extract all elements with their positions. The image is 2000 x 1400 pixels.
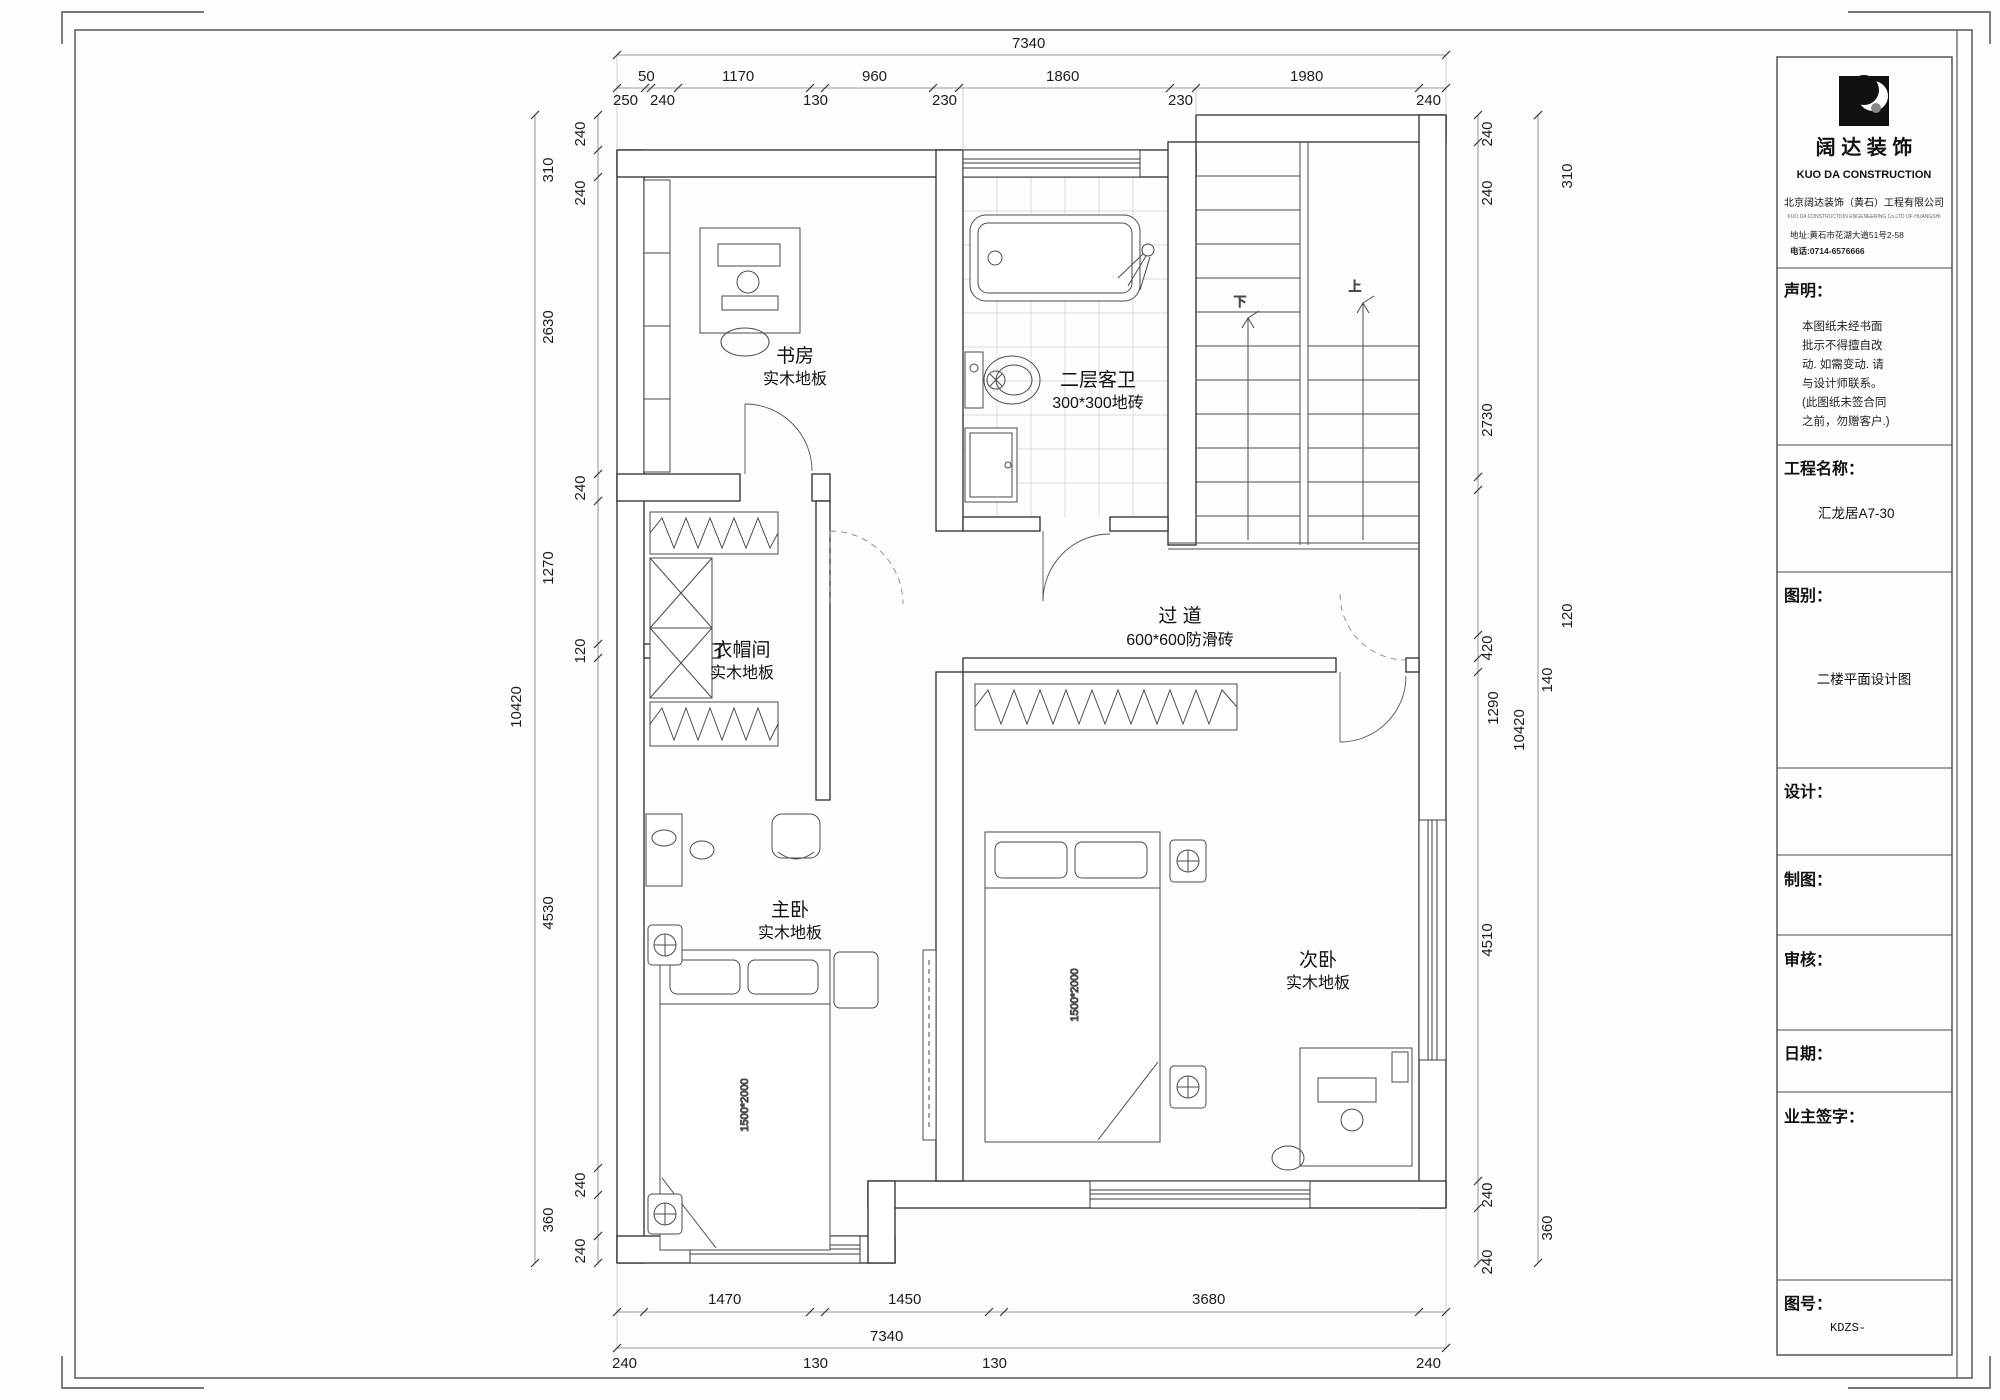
room-study-floor: 实木地板 bbox=[763, 370, 827, 388]
dimension-left: 240 310 240 2630 240 1270 120 4530 240 3… bbox=[508, 111, 602, 1267]
bathtub bbox=[970, 215, 1140, 301]
dim-right: 420 bbox=[1479, 635, 1496, 660]
dim-left: 120 bbox=[572, 638, 589, 663]
dim-left: 4530 bbox=[540, 896, 557, 929]
dim-right-overall: 10420 bbox=[1511, 709, 1528, 751]
dim-bottom: 240 bbox=[1416, 1355, 1441, 1372]
dim-right: 4510 bbox=[1479, 923, 1496, 956]
dim-top: 960 bbox=[862, 68, 887, 85]
room-master-floor: 实木地板 bbox=[758, 924, 822, 942]
dimension-right: 240 310 240 2730 120 1290 420 140 4510 2… bbox=[1474, 111, 1576, 1275]
statement-line: 本图纸未经书面 bbox=[1802, 319, 1883, 333]
room-bath-name: 二层客卫 bbox=[1060, 369, 1136, 391]
door-bath bbox=[1043, 531, 1110, 601]
logo-cn: 阔 达 装 饰 bbox=[1816, 135, 1913, 159]
dim-right: 310 bbox=[1559, 163, 1576, 188]
dim-left: 1270 bbox=[540, 551, 557, 584]
bathroom-fixtures bbox=[965, 215, 1154, 502]
stairs-down-label: 下 bbox=[1233, 294, 1246, 309]
dim-bottom: 1450 bbox=[888, 1291, 921, 1308]
dim-top: 230 bbox=[932, 92, 957, 109]
wash-basin bbox=[965, 428, 1017, 502]
nightstand bbox=[834, 952, 878, 1008]
dim-bottom: 240 bbox=[612, 1355, 637, 1372]
dim-top-overall: 7340 bbox=[1012, 35, 1045, 52]
statement-line: 动. 如需变动. 请 bbox=[1802, 357, 1884, 371]
company-name-en: KUO DA CONSTRUCTION ENGENEERING Co.LTD O… bbox=[1787, 214, 1940, 220]
computer-desk bbox=[1272, 1048, 1412, 1170]
dim-left: 310 bbox=[540, 157, 557, 182]
window-second-right bbox=[1419, 820, 1446, 1060]
dim-right: 2730 bbox=[1479, 403, 1496, 436]
dim-top: 240 bbox=[650, 92, 675, 109]
door-swing-dashed bbox=[830, 531, 903, 604]
owner-sign-label: 业主签字： bbox=[1784, 1107, 1864, 1126]
drawing-no-label: 图号： bbox=[1784, 1295, 1832, 1313]
dim-top: 250 bbox=[613, 92, 638, 109]
room-second-name: 次卧 bbox=[1299, 949, 1337, 971]
company-address: 地址:黄石市花湖大道51号2-58 bbox=[1790, 230, 1904, 240]
stairs-up-label: 上 bbox=[1348, 279, 1361, 294]
project-label: 工程名称： bbox=[1784, 459, 1864, 478]
dim-right: 1290 bbox=[1485, 691, 1502, 724]
drawing-no-value: KDZS- bbox=[1830, 1321, 1866, 1335]
dim-right: 360 bbox=[1539, 1215, 1556, 1240]
wall-lamp-icon bbox=[1170, 840, 1206, 882]
dim-right: 240 bbox=[1479, 180, 1496, 205]
window-second-bottom bbox=[1090, 1181, 1310, 1208]
dim-right: 120 bbox=[1559, 603, 1576, 628]
dim-top: 1170 bbox=[722, 68, 754, 85]
bed-master: 1500*2000 bbox=[660, 950, 830, 1250]
floor-plan-svg: 下 上 bbox=[0, 0, 2000, 1400]
company-phone: 电话:0714-6576666 bbox=[1790, 246, 1865, 256]
armchair bbox=[772, 814, 820, 859]
bed-size-label: 1500*2000 bbox=[739, 1078, 751, 1131]
dim-left: 360 bbox=[540, 1207, 557, 1232]
dim-top: 1860 bbox=[1046, 68, 1079, 85]
dim-left: 240 bbox=[572, 180, 589, 205]
drawing-sheet: 下 上 bbox=[0, 0, 2000, 1400]
cloakroom-racks bbox=[650, 512, 778, 746]
dim-bottom: 130 bbox=[803, 1355, 828, 1372]
dim-bottom: 3680 bbox=[1192, 1291, 1225, 1308]
wall-lamp-icon bbox=[648, 925, 682, 965]
room-bath-floor: 300*300地砖 bbox=[1052, 394, 1144, 412]
room-study-name: 书房 bbox=[776, 345, 814, 367]
statement-line: 之前，勿赠客户.) bbox=[1802, 414, 1890, 428]
dim-bottom-overall: 7340 bbox=[870, 1328, 903, 1345]
logo-en: KUO DA CONSTRUCTION bbox=[1797, 169, 1932, 181]
dim-left: 240 bbox=[572, 121, 589, 146]
dim-left: 2630 bbox=[540, 310, 557, 343]
dim-right: 240 bbox=[1479, 1182, 1496, 1207]
design-label: 设计： bbox=[1784, 782, 1832, 801]
statement-line: 与设计师联系。 bbox=[1802, 376, 1883, 390]
dim-bottom: 1470 bbox=[708, 1291, 741, 1308]
dim-top: 230 bbox=[1168, 92, 1193, 109]
dim-left: 240 bbox=[572, 1172, 589, 1197]
dresser bbox=[646, 814, 714, 886]
dim-bottom: 130 bbox=[982, 1355, 1007, 1372]
study-furniture bbox=[644, 180, 800, 472]
study-desk bbox=[700, 228, 800, 356]
room-cloak-name: 衣帽间 bbox=[713, 639, 770, 661]
dim-left: 240 bbox=[572, 475, 589, 500]
statement-line: 批示不得擅自改 bbox=[1802, 338, 1883, 352]
bed-second: 1500*2000 bbox=[985, 832, 1160, 1142]
dim-right: 240 bbox=[1479, 1249, 1496, 1274]
dim-top: 130 bbox=[803, 92, 828, 109]
drawing-type-value: 二楼平面设计图 bbox=[1817, 672, 1912, 687]
room-second-floor: 实木地板 bbox=[1286, 974, 1350, 992]
second-furniture: 1500*2000 bbox=[975, 684, 1412, 1170]
review-label: 审核： bbox=[1784, 950, 1832, 969]
statement-label: 声明： bbox=[1783, 281, 1832, 300]
project-value: 汇龙居A7-30 bbox=[1818, 506, 1895, 521]
date-label: 日期： bbox=[1784, 1044, 1832, 1063]
drawing-type-label: 图别： bbox=[1784, 587, 1832, 605]
wall-lamp-icon bbox=[1170, 1066, 1206, 1108]
door-second bbox=[1340, 672, 1406, 742]
bed-size-label: 1500*2000 bbox=[1069, 968, 1081, 1021]
staircase: 下 上 bbox=[1168, 142, 1419, 549]
title-block: 阔 达 装 饰 KUO DA CONSTRUCTION 北京阔达装饰（黄石）工程… bbox=[1777, 57, 1952, 1355]
statement-line: (此图纸未签合同 bbox=[1802, 395, 1886, 409]
dim-right: 240 bbox=[1479, 121, 1496, 146]
dim-top: 240 bbox=[1416, 92, 1441, 109]
bookshelf bbox=[644, 180, 670, 472]
dim-top: 50 bbox=[638, 68, 655, 85]
company-logo bbox=[1839, 75, 1889, 126]
closet-rack bbox=[975, 684, 1237, 730]
dim-left: 240 bbox=[572, 1238, 589, 1263]
toilet bbox=[965, 352, 1040, 408]
room-corridor-name: 过 道 bbox=[1158, 605, 1201, 627]
dim-left-overall: 10420 bbox=[508, 686, 525, 728]
window-bath-top bbox=[963, 150, 1140, 177]
tv-panel bbox=[923, 950, 936, 1140]
dim-top: 1980 bbox=[1290, 68, 1323, 85]
draft-label: 制图： bbox=[1784, 871, 1832, 889]
room-master-name: 主卧 bbox=[771, 899, 809, 921]
dim-right: 140 bbox=[1539, 667, 1556, 692]
room-corridor-floor: 600*600防滑砖 bbox=[1126, 631, 1234, 649]
company-name: 北京阔达装饰（黄石）工程有限公司 bbox=[1784, 196, 1944, 209]
door-study bbox=[745, 404, 812, 474]
wall-lamp-icon bbox=[648, 1194, 682, 1234]
room-cloak-floor: 实木地板 bbox=[710, 664, 774, 682]
door-swing-dashed bbox=[1340, 594, 1406, 660]
